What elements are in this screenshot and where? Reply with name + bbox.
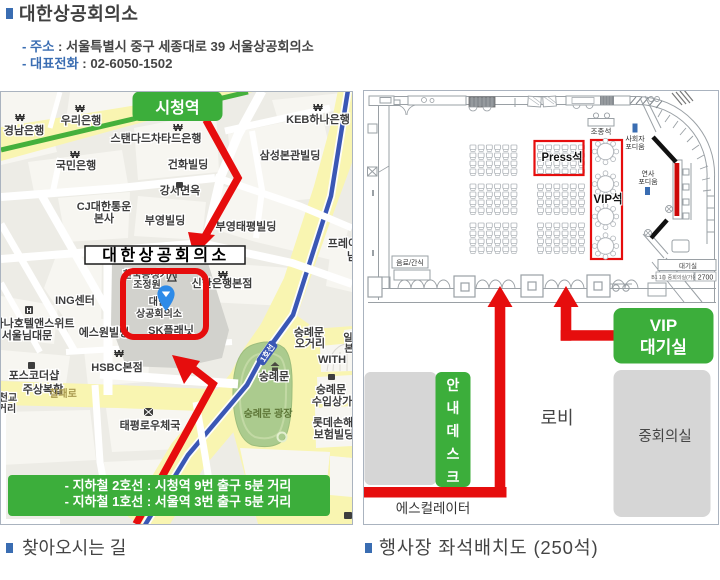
svg-text:본사: 본사 <box>94 211 115 225</box>
svg-text:숭례문: 숭례문 <box>294 325 324 339</box>
svg-text:스탠다드차타드은행: 스탠다드차타드은행 <box>110 131 201 145</box>
svg-text:대기실: 대기실 <box>679 261 697 270</box>
svg-text:₩: ₩ <box>15 113 25 124</box>
svg-text:건화빌딩: 건화빌딩 <box>168 157 208 171</box>
svg-text:수입상가: 수입상가 <box>312 394 352 408</box>
svg-text:VIP석: VIP석 <box>594 192 623 206</box>
svg-text:사회자: 사회자 <box>625 134 645 143</box>
svg-text:B1 1층 중회의실(가용): B1 1층 중회의실(가용) <box>651 274 699 281</box>
svg-text:- 지하철 1호선 : 서울역 3번 출구 5분 거리: - 지하철 1호선 : 서울역 3번 출구 5분 거리 <box>65 494 292 509</box>
svg-text:₩: ₩ <box>114 349 124 360</box>
svg-text:2700: 2700 <box>698 275 714 282</box>
svg-text:포디움: 포디움 <box>625 142 645 151</box>
svg-text:남: 남 <box>347 250 352 263</box>
svg-text:숭례문 광장: 숭례문 광장 <box>244 407 294 420</box>
svg-text:CJ대한통운: CJ대한통운 <box>77 199 132 213</box>
svg-text:오거리: 오거리 <box>295 336 325 350</box>
svg-text:부영빌딩: 부영빌딩 <box>145 213 185 227</box>
svg-text:H: H <box>26 308 31 315</box>
svg-text:중회의실: 중회의실 <box>638 428 691 445</box>
svg-text:우리은행: 우리은행 <box>61 113 101 127</box>
svg-text:일: 일 <box>343 331 352 344</box>
svg-text:연사: 연사 <box>642 169 655 178</box>
svg-text:₩: ₩ <box>173 123 183 134</box>
svg-text:KEB하나은행: KEB하나은행 <box>286 112 350 126</box>
svg-text:안: 안 <box>447 377 460 393</box>
svg-text:조종석: 조종석 <box>591 126 612 136</box>
svg-text:경남은행: 경남은행 <box>4 123 44 137</box>
svg-text:HSBC본점: HSBC본점 <box>91 360 142 374</box>
svg-text:크: 크 <box>447 469 460 485</box>
svg-text:거리: 거리 <box>1 402 16 415</box>
svg-text:로비: 로비 <box>540 408 573 428</box>
svg-text:숭례문: 숭례문 <box>259 369 289 383</box>
svg-text:마나호텔앤스위트: 마나호텔앤스위트 <box>1 316 74 330</box>
svg-text:롯데손해: 롯데손해 <box>313 415 352 429</box>
svg-text:스: 스 <box>447 446 460 462</box>
svg-text:숭례문: 숭례문 <box>316 382 346 396</box>
svg-text:음료/간식: 음료/간식 <box>396 258 424 267</box>
svg-text:포스코더샵: 포스코더샵 <box>9 368 60 382</box>
svg-text:VIP: VIP <box>650 316 677 335</box>
svg-text:데: 데 <box>447 423 460 439</box>
svg-text:삼성본관빌딩: 삼성본관빌딩 <box>260 148 321 162</box>
svg-text:대한상공회의소: 대한상공회의소 <box>102 246 230 265</box>
svg-text:태평로우체국: 태평로우체국 <box>120 418 181 432</box>
svg-text:Press석: Press석 <box>542 150 583 164</box>
svg-text:본: 본 <box>344 343 352 355</box>
svg-text:천교: 천교 <box>1 391 17 404</box>
svg-text:부영태평빌딩: 부영태평빌딩 <box>216 219 277 233</box>
svg-text:₩: ₩ <box>218 270 228 281</box>
svg-text:- 지하철 2호선 : 시청역 9번 출구 5분 거리: - 지하철 2호선 : 시청역 9번 출구 5분 거리 <box>65 478 292 493</box>
svg-text:에스컬레이터: 에스컬레이터 <box>396 501 471 516</box>
svg-text:ING센터: ING센터 <box>55 293 95 307</box>
svg-text:대기실: 대기실 <box>640 338 687 357</box>
svg-text:서울님대문: 서울님대문 <box>2 328 53 342</box>
svg-text:₩: ₩ <box>313 103 323 114</box>
svg-text:칠패로: 칠패로 <box>49 387 77 400</box>
svg-text:시청역: 시청역 <box>155 98 199 117</box>
svg-text:포디움: 포디움 <box>638 177 658 186</box>
svg-text:보험빌딩: 보험빌딩 <box>314 427 352 441</box>
svg-text:내: 내 <box>447 400 460 416</box>
svg-text:상공회의소: 상공회의소 <box>136 307 182 320</box>
svg-text:₩: ₩ <box>75 104 85 115</box>
svg-text:₩: ₩ <box>70 150 80 161</box>
svg-text:조정원: 조정원 <box>133 278 161 291</box>
svg-text:프레이저: 프레이저 <box>328 236 352 250</box>
svg-text:WITH: WITH <box>318 354 346 366</box>
